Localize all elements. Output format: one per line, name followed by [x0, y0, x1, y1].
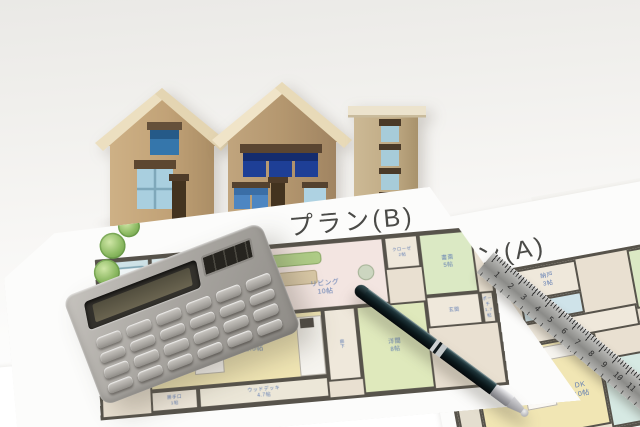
room-label: 勝手口1帖	[167, 394, 183, 407]
window	[381, 174, 399, 190]
window-pane	[243, 153, 318, 161]
calculator-key	[256, 317, 283, 337]
window	[381, 126, 399, 142]
room-label: 洋間8帖	[388, 339, 402, 355]
calculator-key	[226, 329, 253, 349]
room-closet-b: クローゼ2帖	[383, 234, 421, 270]
room-kitchen-door-b: 勝手口1帖	[150, 387, 199, 413]
room-label: 廊下	[339, 339, 346, 349]
calculator-key	[167, 352, 194, 372]
room-entrance-b: 玄関	[425, 292, 484, 329]
window-pane	[150, 130, 179, 139]
window-lintel	[134, 160, 176, 169]
room-label: 書斎5帖	[441, 255, 455, 270]
window-lintel	[379, 119, 401, 126]
room-label: ウッドデッキ4.7帖	[247, 385, 281, 401]
calculator-key	[197, 340, 224, 360]
window-lintel	[302, 182, 328, 188]
calculator-key	[107, 375, 134, 395]
window-pane	[234, 188, 268, 195]
window-lintel	[379, 144, 401, 150]
solar-panel	[200, 237, 254, 277]
room-label: 納戸3帖	[540, 272, 556, 290]
room-label: 玄関	[449, 307, 461, 314]
room-porch-b: ポーチ1.7帖	[479, 291, 497, 324]
window-lintel	[232, 182, 270, 188]
window-lintel	[147, 122, 182, 130]
door-lintel	[169, 174, 189, 181]
calculator-key	[137, 363, 164, 383]
tree-symbol	[98, 232, 126, 260]
window	[381, 150, 399, 166]
room-study-a: 書斎3帖	[626, 239, 640, 309]
door-lintel	[268, 177, 288, 183]
scene-photo: プラン(A) 洋間6帖 納戸3帖 浴室 書斎3帖 玄関	[0, 0, 640, 427]
stove-symbol	[300, 318, 315, 329]
window-lintel	[379, 168, 401, 174]
window-lintel	[240, 144, 322, 153]
room-label: クローゼ2帖	[392, 246, 412, 258]
room-label: ポーチ1.7帖	[482, 296, 495, 319]
roof-edge	[348, 115, 426, 118]
